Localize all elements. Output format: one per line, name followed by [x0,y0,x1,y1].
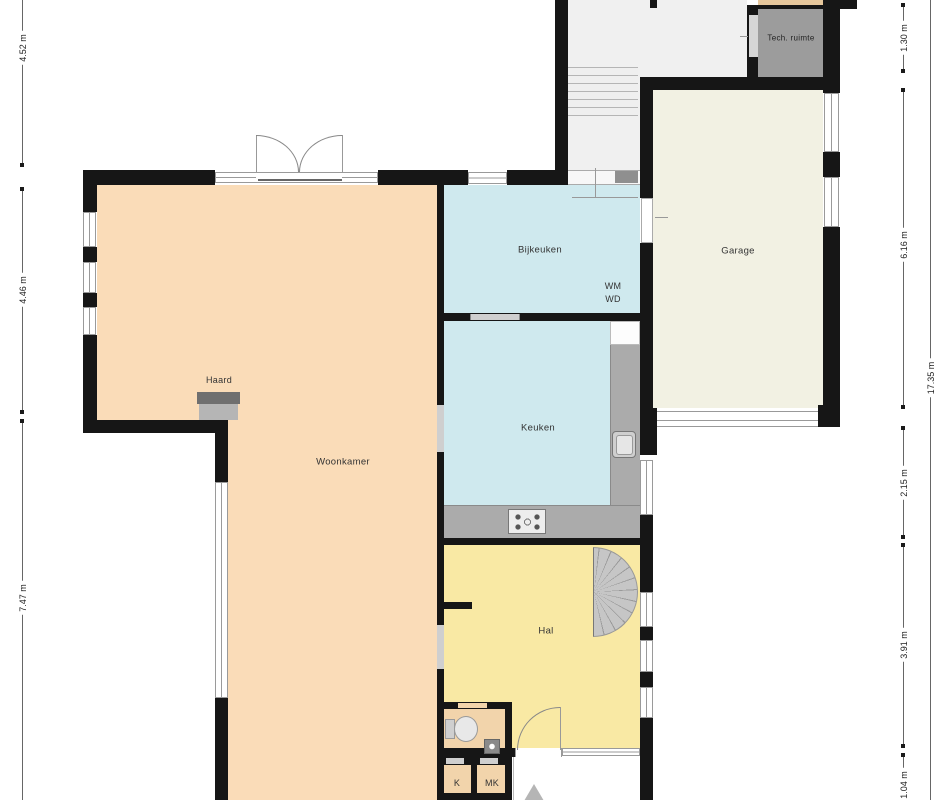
wall [83,293,97,307]
label-keuken: Keuken [521,423,555,434]
dimension-tick [20,187,24,191]
window [640,592,653,627]
wall [83,247,97,262]
label-tech-ruimte: Tech. ruimte [767,34,814,43]
window [640,460,653,515]
wall [555,0,568,170]
entrance-arrow-icon [524,784,544,800]
window [468,172,507,184]
door-toilet [458,703,487,708]
door-opening-hal [437,625,444,669]
french-door-swing-right [299,135,342,172]
room-woonkamer-lower [228,420,437,800]
wall [823,227,840,405]
wall [437,185,444,405]
door-opening-keuken [437,405,444,452]
wall [443,170,468,185]
kitchen-sink-icon [612,431,636,458]
dimension-line-total [930,0,931,800]
wall [215,433,228,482]
wall [437,793,512,800]
label-wm: WM [605,281,622,291]
label-garage: Garage [721,246,755,257]
wall [640,77,653,170]
dimension-label-total: 17.35 m [926,359,936,398]
dimension-label-right-3: 2.15 m [899,466,909,500]
label-haard: Haard [206,375,232,385]
dimension-label-right-2: 6.16 m [899,228,909,262]
hand-basin-icon [484,739,500,754]
room-stair-hall [568,0,747,77]
stove-icon [508,509,546,534]
wall [83,420,228,433]
wall [437,748,515,757]
window [640,687,653,718]
staircase-steps [568,67,638,116]
french-door-threshold [258,179,342,181]
window [83,307,96,335]
wall [823,152,840,177]
room-tech-ruimte [758,9,823,77]
window [83,212,96,247]
fireplace-light [199,404,238,420]
wall [640,672,653,687]
door-dash [740,36,748,37]
door-closet-mk [480,758,498,764]
dimension-tick [901,543,905,547]
wall [823,9,840,93]
dimension-tick [901,744,905,748]
door-tech-ruimte [749,15,758,57]
dimension-label-right-4: 3.91 m [899,628,909,662]
doormat [615,171,638,183]
wall [823,0,857,9]
label-closet-mk: MK [485,778,499,788]
window [824,177,839,227]
room-woonkamer [97,185,437,420]
wall [640,408,657,455]
dimension-tick [20,163,24,167]
label-hal: Hal [538,626,553,637]
dimension-tick [901,69,905,73]
wall [650,0,657,8]
dimension-tick [901,753,905,757]
garage-door [657,408,818,427]
dimension-tick [20,419,24,423]
wall [83,185,97,212]
label-closet-k: K [454,778,460,788]
label-wd: WD [605,294,621,304]
wall [378,170,443,185]
wall [640,627,653,640]
dimension-tick [20,410,24,414]
wall [640,243,653,408]
window-sidelight [562,748,640,756]
dimension-tick [901,88,905,92]
wall [640,718,653,800]
dimension-tick [901,535,905,539]
floorplan: Woonkamer Keuken Bijkeuken Garage Hal Te… [0,0,950,800]
wall [505,702,512,800]
dimension-label-left-2: 4.46 m [18,273,28,307]
dimension-tick [901,426,905,430]
label-bijkeuken: Bijkeuken [518,245,562,256]
wall [640,170,653,198]
wall [437,669,444,800]
door-closet-k [446,758,464,764]
dimension-label-left-3: 7.47 m [18,581,28,615]
window [640,640,653,672]
fireplace-dark [197,392,240,404]
dimension-tick [901,3,905,7]
kitchen-appliance [610,321,640,345]
sink-basin [616,435,633,455]
porch-edge [513,757,514,800]
window [824,93,839,152]
dimension-label-right-5: 1.04 m [899,768,909,800]
window [215,482,228,698]
door-garage-side [641,198,653,243]
wall [507,170,568,185]
dimension-line [22,0,23,166]
wall [653,77,840,90]
french-door-leaf-right [342,135,343,172]
wall [818,405,840,427]
wall [437,538,653,545]
french-door-swing-left [256,135,299,172]
toilet-bowl [454,716,478,742]
dimension-label-right-1: 1.30 m [899,21,909,55]
sliding-door-bijkeuken [470,314,520,320]
label-woonkamer: Woonkamer [316,457,370,468]
wall [215,698,228,800]
hal-wall-stub [443,602,472,609]
dimension-label-left-1: 4.52 m [18,31,28,65]
wall [83,335,97,433]
dimension-tick [901,405,905,409]
door-dash [655,217,668,218]
wall [83,170,215,185]
front-door-leaf [560,707,561,750]
door-leaf-line [595,168,596,198]
window [83,262,96,293]
wall [640,515,653,592]
door-swing-line [572,197,638,198]
